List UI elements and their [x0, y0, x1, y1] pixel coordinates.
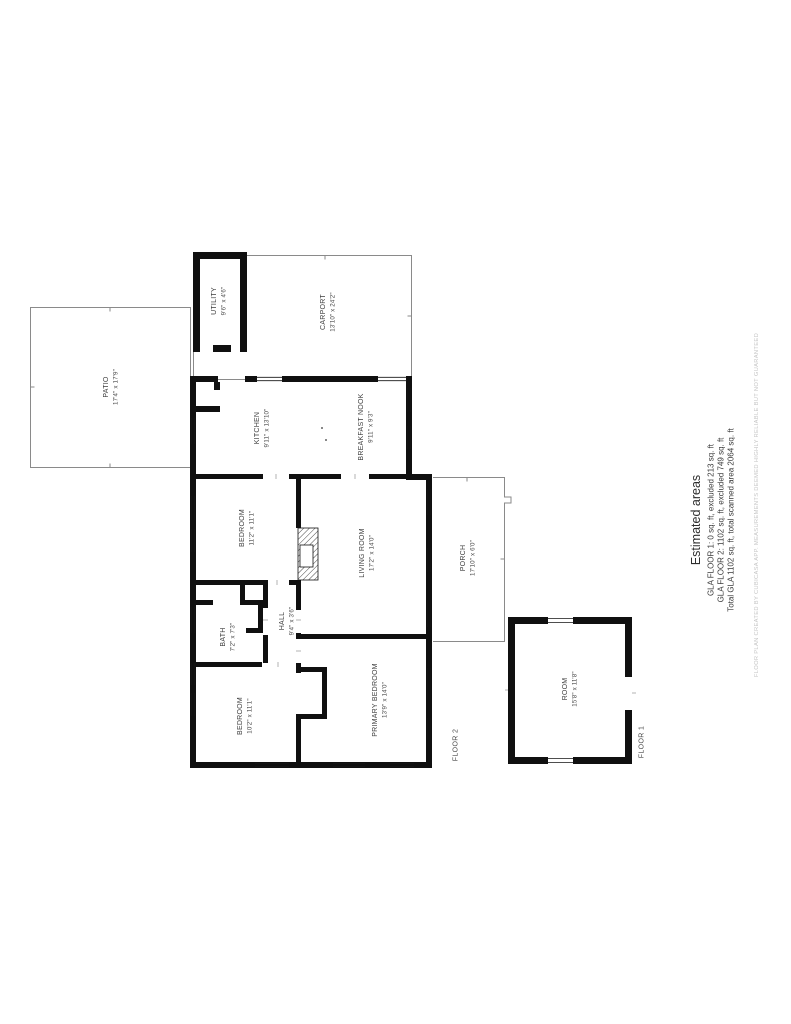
room-dims: 17'4" x 17'9": [113, 369, 120, 405]
room-dims: 17'10" x 6'0": [470, 540, 477, 576]
room-name: UTILITY: [211, 287, 218, 315]
estimated-areas-line: GLA FLOOR 1: 0 sq. ft, excluded 213 sq. …: [707, 443, 716, 596]
room-label-breakfast-nook: BREAKFAST NOOK 9'11" x 9'3": [358, 393, 375, 460]
room-dims: 9'11" x 13'10": [264, 408, 271, 447]
room-dims: 9'6" x 4'6": [221, 287, 228, 316]
room-name: KITCHEN: [254, 412, 261, 444]
room-name: PRIMARY BEDROOM: [372, 663, 379, 737]
detached-room-walls: [508, 617, 632, 764]
room-dims: 15'8" x 11'8": [572, 671, 579, 706]
room-name: BATH: [220, 627, 227, 646]
room-label-bedroom-1: BEDROOM 11'2" x 11'1": [239, 509, 256, 547]
room-label-living-room: LIVING ROOM 17'2" x 14'0": [359, 528, 376, 577]
room-dims: 7'2" x 7'3": [230, 623, 237, 652]
room-label-hall: HALL 9'4" x 3'6": [279, 607, 296, 636]
floor-label-2: FLOOR 2: [453, 729, 460, 761]
room-label-kitchen: KITCHEN 9'11" x 13'10": [254, 408, 271, 447]
room-dims: 13'9" x 14'0": [382, 682, 389, 718]
room-label-bath: BATH 7'2" x 7'3": [220, 623, 237, 652]
floor-plan-page: PATIO 17'4" x 17'9" UTILITY 9'6" x 4'6" …: [0, 0, 791, 1024]
room-label-porch: PORCH 17'10" x 6'0": [460, 540, 477, 576]
room-name: BEDROOM: [237, 697, 244, 735]
room-name: HALL: [279, 612, 286, 631]
floor-label-1: FLOOR 1: [639, 726, 646, 758]
room-name: ROOM: [562, 678, 569, 701]
room-name: BEDROOM: [239, 509, 246, 547]
room-label-room: ROOM 15'8" x 11'8": [562, 671, 579, 706]
room-dims: 11'2" x 11'1": [249, 511, 256, 546]
room-dims: 13'10" x 24'2": [330, 292, 337, 331]
floor-plan-svg: PATIO 17'4" x 17'9" UTILITY 9'6" x 4'6" …: [0, 0, 791, 1024]
room-dims: 17'2" x 14'0": [369, 535, 376, 571]
room-name: CARPORT: [320, 294, 327, 330]
estimated-areas-title: Estimated areas: [689, 475, 703, 565]
room-label-primary-bedroom: PRIMARY BEDROOM 13'9" x 14'0": [372, 663, 389, 737]
patio-outline: [31, 308, 191, 468]
estimated-areas-line: GLA FLOOR 2: 1102 sq. ft, excluded 749 s…: [717, 437, 726, 603]
room-label-utility: UTILITY 9'6" x 4'6": [211, 287, 228, 316]
room-label-carport: CARPORT 13'10" x 24'2": [320, 292, 337, 331]
room-dims: 10'2" x 11'1": [247, 698, 254, 733]
room-name: LIVING ROOM: [359, 528, 366, 577]
room-dims: 9'4" x 3'6": [289, 607, 296, 636]
room-name: PORCH: [460, 545, 467, 572]
estimated-areas-line: Total GLA 1102 sq. ft, total scanned are…: [727, 427, 736, 611]
room-dims: 9'11" x 9'3": [368, 411, 375, 443]
room-label-patio: PATIO 17'4" x 17'9": [103, 369, 120, 405]
fireplace: [298, 528, 318, 580]
estimated-areas: Estimated areas GLA FLOOR 1: 0 sq. ft, e…: [689, 427, 736, 611]
room-name: BREAKFAST NOOK: [358, 393, 365, 460]
disclaimer-text: FLOOR PLAN CREATED BY CUBICASA APP. MEAS…: [754, 333, 760, 677]
room-label-bedroom-2: BEDROOM 10'2" x 11'1": [237, 697, 254, 735]
room-name: PATIO: [103, 376, 110, 398]
